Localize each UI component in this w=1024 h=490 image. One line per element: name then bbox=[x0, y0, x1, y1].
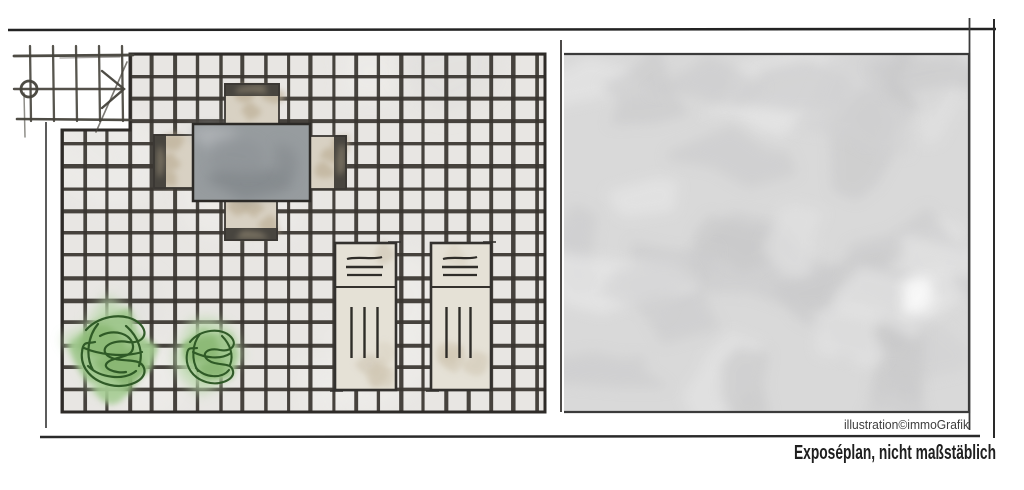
svg-text:illustration©immoGrafik: illustration©immoGrafik bbox=[844, 417, 969, 432]
svg-text:Exposéplan, nicht maßstäblich: Exposéplan, nicht maßstäblich bbox=[794, 441, 996, 464]
